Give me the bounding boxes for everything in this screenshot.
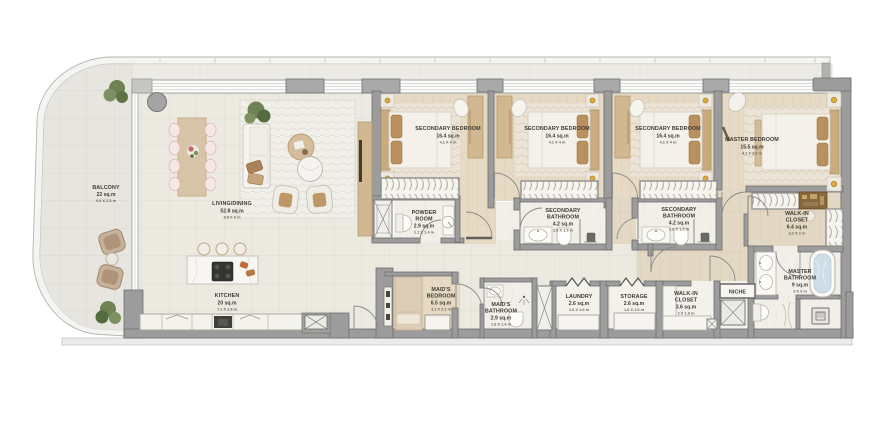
svg-text:SECONDARY BEDROOM: SECONDARY BEDROOM (524, 126, 590, 132)
svg-text:2.8 X 1.5 m: 2.8 X 1.5 m (669, 227, 690, 232)
svg-text:SECONDARY: SECONDARY (545, 208, 580, 214)
svg-text:MASTER BEDROOM: MASTER BEDROOM (725, 137, 779, 143)
svg-text:POWDER: POWDER (412, 210, 437, 216)
svg-text:BATHROOM: BATHROOM (663, 214, 696, 220)
svg-text:WALK-IN: WALK-IN (674, 291, 698, 297)
svg-text:MAID'S: MAID'S (431, 287, 451, 293)
svg-text:1.1 X 1.4 m: 1.1 X 1.4 m (414, 230, 435, 235)
svg-text:8.8 X 6 m: 8.8 X 6 m (224, 215, 241, 220)
svg-text:CLOSET: CLOSET (675, 298, 698, 304)
svg-text:LIVING/DINING: LIVING/DINING (212, 201, 252, 207)
svg-text:4.1 X 4 m: 4.1 X 4 m (660, 140, 677, 145)
svg-text:BALCONY: BALCONY (92, 185, 120, 191)
svg-text:SECONDARY BEDROOM: SECONDARY BEDROOM (635, 126, 701, 132)
svg-text:3.2 X 2 m: 3.2 X 2 m (789, 231, 806, 236)
svg-text:BATHROOM: BATHROOM (784, 276, 817, 282)
svg-text:7.1 X 2.8 m: 7.1 X 2.8 m (217, 307, 238, 312)
svg-text:1.6 X 1.6 m: 1.6 X 1.6 m (624, 307, 645, 312)
svg-text:1.8 X 1.6 m: 1.8 X 1.6 m (491, 322, 512, 327)
svg-text:SECONDARY BEDROOM: SECONDARY BEDROOM (415, 126, 481, 132)
svg-text:SECONDARY: SECONDARY (661, 207, 696, 213)
svg-text:WALK-IN: WALK-IN (785, 211, 809, 217)
svg-text:4.1 X 3.6 m: 4.1 X 3.6 m (742, 151, 763, 156)
svg-text:NICHE: NICHE (729, 290, 747, 296)
svg-text:BATHROOM: BATHROOM (547, 215, 580, 221)
svg-text:BATHROOM: BATHROOM (485, 309, 518, 315)
svg-text:3 X 3 m: 3 X 3 m (793, 289, 807, 294)
svg-text:CLOSET: CLOSET (786, 218, 809, 224)
svg-text:BEDROOM: BEDROOM (427, 294, 456, 300)
svg-text:2 X 1.8 m: 2 X 1.8 m (678, 311, 695, 316)
svg-text:4.1 X 4 m: 4.1 X 4 m (549, 140, 566, 145)
svg-text:4.1 X 4 m: 4.1 X 4 m (440, 140, 457, 145)
svg-text:ROOM: ROOM (415, 217, 433, 223)
svg-text:3.1 X 2.1 m: 3.1 X 2.1 m (431, 307, 452, 312)
svg-text:MAID'S: MAID'S (491, 302, 511, 308)
svg-text:KITCHEN: KITCHEN (215, 293, 240, 299)
svg-text:9.8 X 2.5 m: 9.8 X 2.5 m (96, 198, 117, 203)
svg-text:MASTER: MASTER (788, 269, 811, 275)
svg-text:STORAGE: STORAGE (620, 294, 648, 300)
svg-text:LAUNDRY: LAUNDRY (566, 294, 593, 300)
svg-text:1.6 X 1.6 m: 1.6 X 1.6 m (569, 307, 590, 312)
svg-text:2.8 X 1.5 m: 2.8 X 1.5 m (553, 228, 574, 233)
